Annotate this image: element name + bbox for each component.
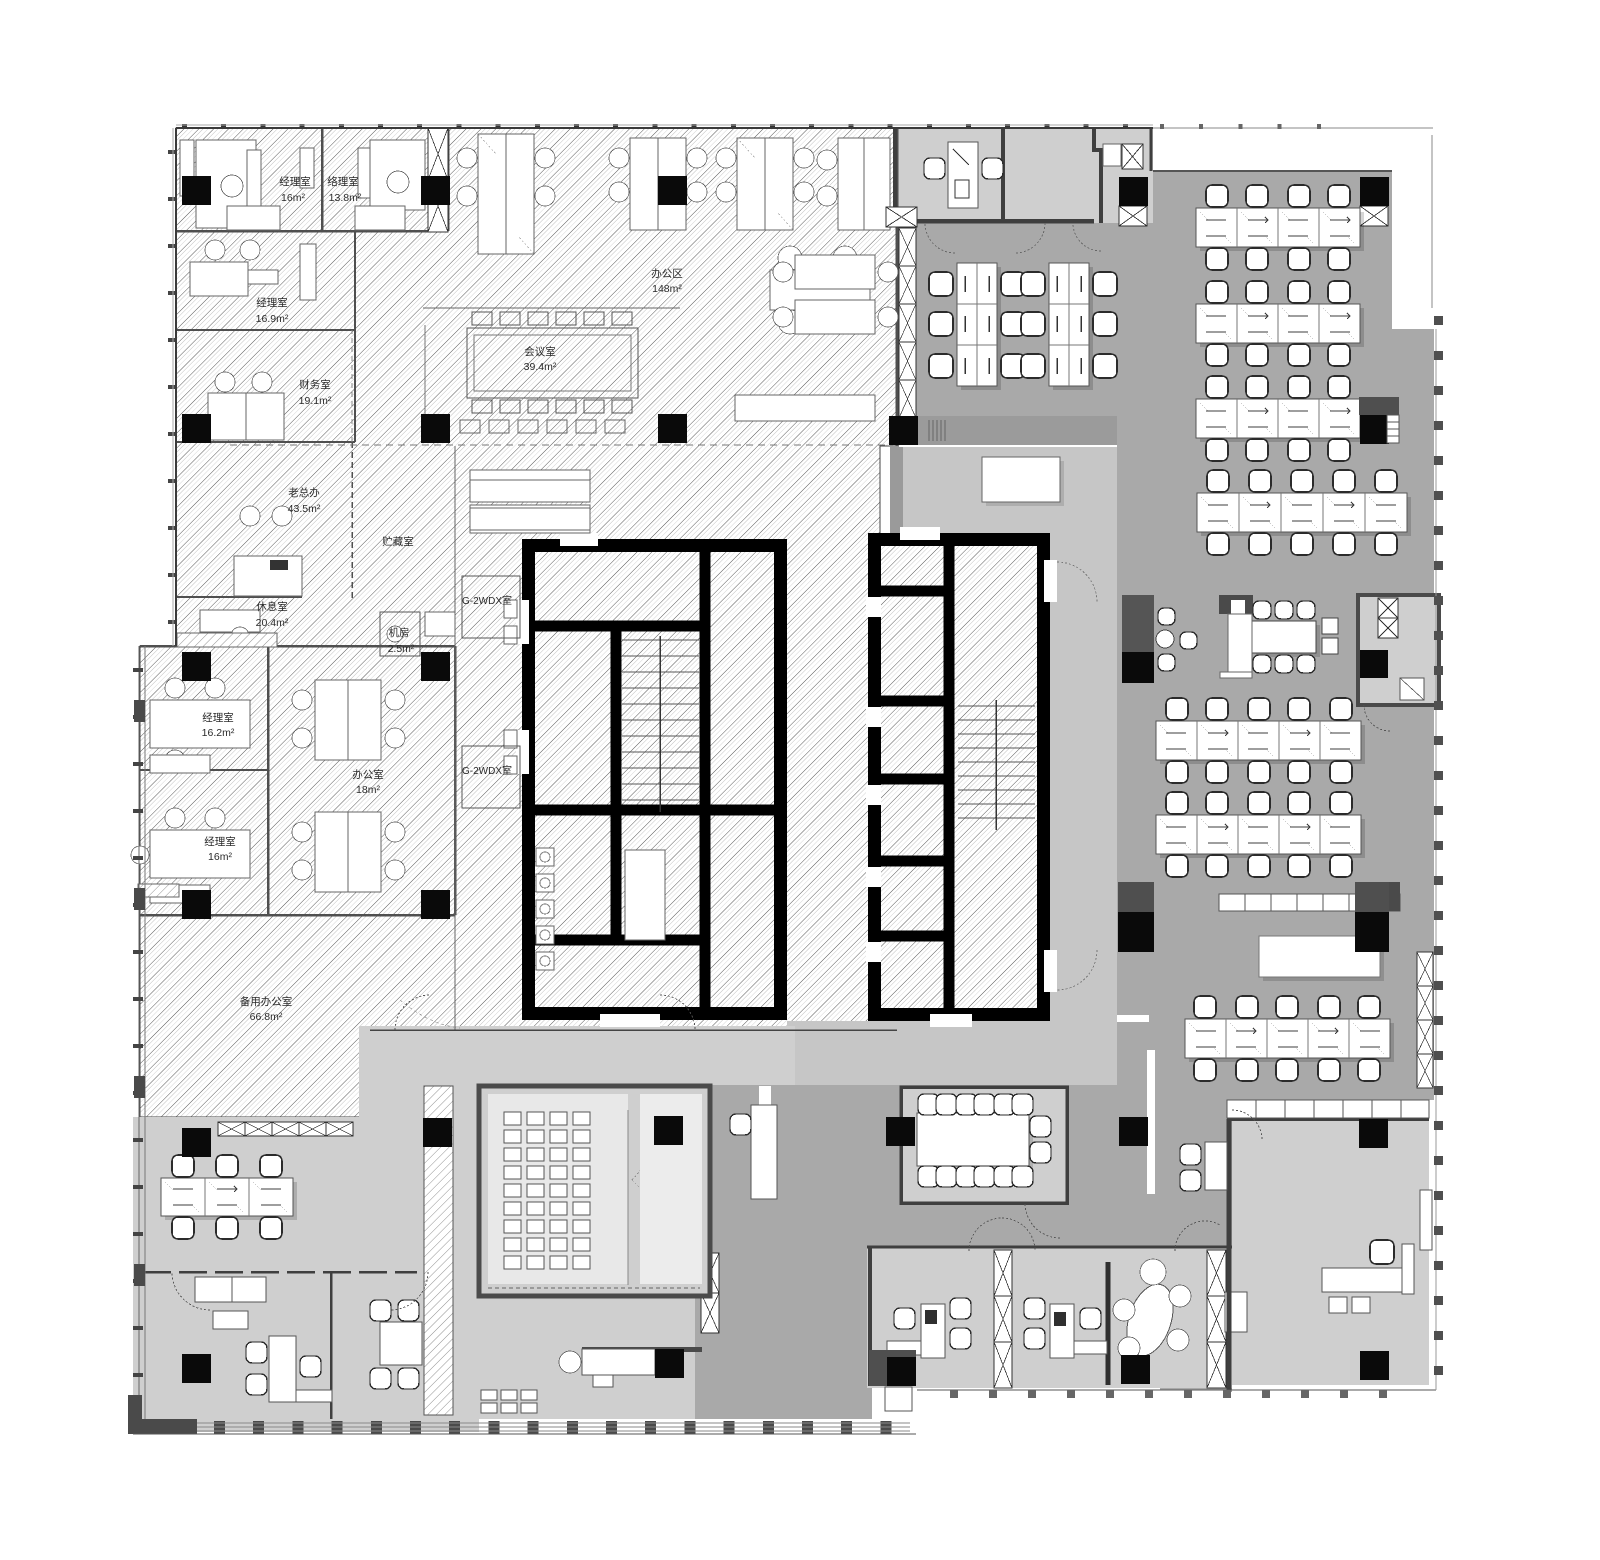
svg-text:会议室: 会议室 xyxy=(524,345,556,358)
svg-text:机房: 机房 xyxy=(389,626,410,639)
svg-text:经理室: 经理室 xyxy=(202,711,234,724)
svg-text:休息室: 休息室 xyxy=(256,600,288,613)
svg-text:经理室: 经理室 xyxy=(279,175,311,188)
svg-text:16.2m²: 16.2m² xyxy=(202,727,235,739)
svg-text:18m²: 18m² xyxy=(356,784,380,796)
svg-text:办公区: 办公区 xyxy=(651,267,683,280)
svg-text:16m²: 16m² xyxy=(281,192,305,204)
svg-text:G-2WDX室: G-2WDX室 xyxy=(462,594,512,607)
svg-text:财务室: 财务室 xyxy=(299,378,331,391)
svg-text:G-2WDX室: G-2WDX室 xyxy=(462,764,512,777)
svg-text:备用办公室: 备用办公室 xyxy=(240,995,293,1008)
svg-text:络理室: 络理室 xyxy=(327,175,359,188)
svg-text:16.9m²: 16.9m² xyxy=(256,313,289,325)
svg-text:办公室: 办公室 xyxy=(352,768,384,781)
svg-text:老总办: 老总办 xyxy=(288,486,320,499)
svg-text:66.8m²: 66.8m² xyxy=(250,1011,283,1023)
svg-text:经理室: 经理室 xyxy=(256,296,288,309)
svg-text:16m²: 16m² xyxy=(208,851,232,863)
svg-text:39.4m²: 39.4m² xyxy=(524,361,557,373)
svg-text:贮藏室: 贮藏室 xyxy=(382,535,414,548)
svg-text:2.5m²: 2.5m² xyxy=(388,643,415,655)
svg-text:43.5m²: 43.5m² xyxy=(288,503,321,515)
svg-text:20.4m²: 20.4m² xyxy=(256,617,289,629)
svg-text:19.1m²: 19.1m² xyxy=(299,395,332,407)
svg-text:148m²: 148m² xyxy=(652,283,682,295)
svg-text:经理室: 经理室 xyxy=(204,835,236,848)
svg-text:13.8m²: 13.8m² xyxy=(329,192,362,204)
